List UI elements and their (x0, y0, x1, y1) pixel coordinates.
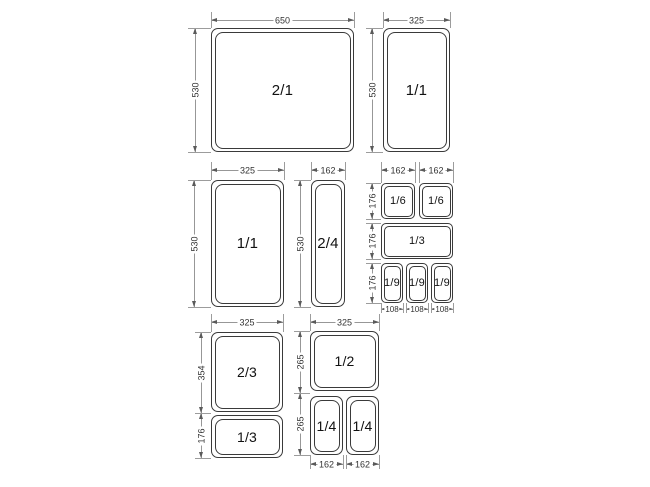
dim-label: 530 (190, 234, 199, 253)
pan-size-label: 1/3 (382, 224, 452, 258)
pan-1-1-top: 1/1 (383, 28, 450, 152)
dim-label: 108 (384, 306, 399, 314)
dim-label: 650 (273, 16, 292, 25)
pan-1-6-left: 1/6 (381, 183, 415, 219)
extension-line (310, 455, 311, 469)
dim-label: 325 (335, 318, 354, 327)
extension-line (366, 183, 381, 184)
extension-line (381, 162, 382, 183)
extension-line (294, 331, 310, 332)
extension-line (383, 12, 384, 28)
pan-size-label: 2/4 (312, 181, 344, 306)
dim-width-325-row1: 325 (383, 16, 450, 25)
extension-line (284, 162, 285, 180)
dim-label: 162 (426, 166, 445, 175)
pan-size-label: 1/1 (384, 29, 449, 151)
pan-size-label: 2/1 (212, 29, 353, 151)
pan-1-3-middle: 1/3 (381, 223, 453, 259)
extension-line (366, 303, 381, 304)
pan-1-9-left: 1/9 (381, 263, 403, 303)
pan-size-label: 1/6 (420, 184, 452, 218)
extension-line (211, 162, 212, 180)
pan-2-4: 2/4 (311, 180, 345, 307)
pan-size-label: 1/9 (432, 264, 452, 302)
extension-line (403, 303, 404, 313)
dim-width-108-left: 108 (381, 305, 403, 314)
extension-line (188, 152, 211, 153)
dim-label: 265 (296, 414, 305, 433)
extension-line (381, 303, 382, 313)
extension-line (415, 162, 416, 183)
extension-line (311, 162, 312, 180)
extension-line (354, 12, 355, 28)
dim-label: 162 (353, 460, 372, 469)
pan-size-label: 1/3 (212, 416, 282, 457)
dim-width-162-sixth-left: 162 (381, 166, 415, 175)
dim-height-265-half: 265 (296, 331, 305, 393)
dim-label: 108 (409, 306, 424, 314)
extension-line (346, 455, 347, 469)
extension-line (294, 307, 311, 308)
extension-line (283, 314, 284, 332)
extension-line (211, 12, 212, 28)
extension-line (188, 307, 211, 308)
extension-line (188, 28, 211, 29)
dim-width-325-row3-left: 325 (211, 318, 283, 327)
dim-label: 108 (434, 306, 449, 314)
extension-line (379, 314, 380, 331)
extension-line (211, 314, 212, 332)
extension-line (195, 458, 211, 459)
dim-height-530-row1-left: 530 (191, 28, 200, 152)
extension-line (343, 455, 344, 469)
dim-label: 176 (368, 231, 377, 250)
dim-label: 530 (191, 80, 200, 99)
dim-label: 325 (238, 166, 257, 175)
extension-line (379, 455, 380, 469)
dim-label: 530 (368, 80, 377, 99)
pan-size-label: 2/3 (212, 333, 282, 411)
dim-label: 325 (237, 318, 256, 327)
extension-line (428, 303, 429, 313)
extension-line (294, 393, 310, 394)
extension-line (294, 180, 311, 181)
dim-height-530-row1-right: 530 (368, 28, 377, 152)
dim-label: 530 (296, 234, 305, 253)
extension-line (406, 303, 407, 313)
pan-1-9-center: 1/9 (406, 263, 428, 303)
extension-line (453, 162, 454, 183)
pan-1-4-right: 1/4 (346, 396, 379, 455)
extension-line (294, 455, 310, 456)
pan-size-label: 1/9 (407, 264, 427, 302)
dim-label: 354 (197, 363, 206, 382)
dim-width-162-quarter-right: 162 (346, 460, 379, 469)
extension-line (366, 259, 381, 260)
dim-height-176-bottom: 176 (197, 413, 206, 458)
dim-height-176-sixth-row: 176 (368, 183, 377, 219)
dim-label: 162 (388, 166, 407, 175)
extension-line (366, 152, 383, 153)
pan-size-label: 1/6 (382, 184, 414, 218)
extension-line (366, 28, 383, 29)
extension-line (195, 413, 211, 414)
pan-2-3: 2/3 (211, 332, 283, 412)
dim-label: 265 (296, 352, 305, 371)
extension-line (453, 303, 454, 313)
gastronorm-size-diagram: 2/1 1/1 1/1 2/4 1/6 1/6 1/3 1/9 1/9 1/9 … (0, 0, 650, 487)
dim-height-354: 354 (197, 332, 206, 413)
dim-width-162-row2: 162 (311, 166, 345, 175)
pan-size-label: 1/4 (347, 397, 378, 454)
dim-height-265-quarter: 265 (296, 393, 305, 455)
extension-line (366, 223, 381, 224)
pan-1-4-left: 1/4 (310, 396, 343, 455)
dim-height-530-row2-left: 530 (190, 180, 199, 307)
dim-label: 176 (368, 273, 377, 292)
pan-size-label: 1/9 (382, 264, 402, 302)
dim-label: 176 (197, 426, 206, 445)
pan-2-1: 2/1 (211, 28, 354, 152)
dim-width-108-right: 108 (431, 305, 453, 314)
pan-1-1-middle: 1/1 (211, 180, 284, 307)
dim-width-162-quarter-left: 162 (310, 460, 343, 469)
pan-1-3-bottom: 1/3 (211, 415, 283, 458)
dim-label: 325 (407, 16, 426, 25)
pan-1-9-right: 1/9 (431, 263, 453, 303)
extension-line (366, 263, 381, 264)
dim-width-162-sixth-right: 162 (419, 166, 453, 175)
extension-line (419, 162, 420, 183)
dim-width-325-row3-right: 325 (310, 318, 379, 327)
dim-label: 162 (318, 166, 337, 175)
dim-height-176-ninth-row: 176 (368, 263, 377, 303)
dim-width-108-center: 108 (406, 305, 428, 314)
extension-line (366, 219, 381, 220)
extension-line (188, 180, 211, 181)
extension-line (345, 162, 346, 180)
extension-line (310, 314, 311, 331)
pan-size-label: 1/4 (311, 397, 342, 454)
dim-label: 176 (368, 191, 377, 210)
dim-height-530-row2-center: 530 (296, 180, 305, 307)
extension-line (450, 12, 451, 28)
dim-width-325-row2: 325 (211, 166, 284, 175)
pan-size-label: 1/2 (311, 332, 378, 390)
pan-1-2: 1/2 (310, 331, 379, 391)
pan-size-label: 1/1 (212, 181, 283, 306)
dim-label: 162 (317, 460, 336, 469)
pan-1-6-right: 1/6 (419, 183, 453, 219)
extension-line (431, 303, 432, 313)
dim-height-176-third-row: 176 (368, 223, 377, 259)
extension-line (195, 332, 211, 333)
dim-width-650: 650 (211, 16, 354, 25)
